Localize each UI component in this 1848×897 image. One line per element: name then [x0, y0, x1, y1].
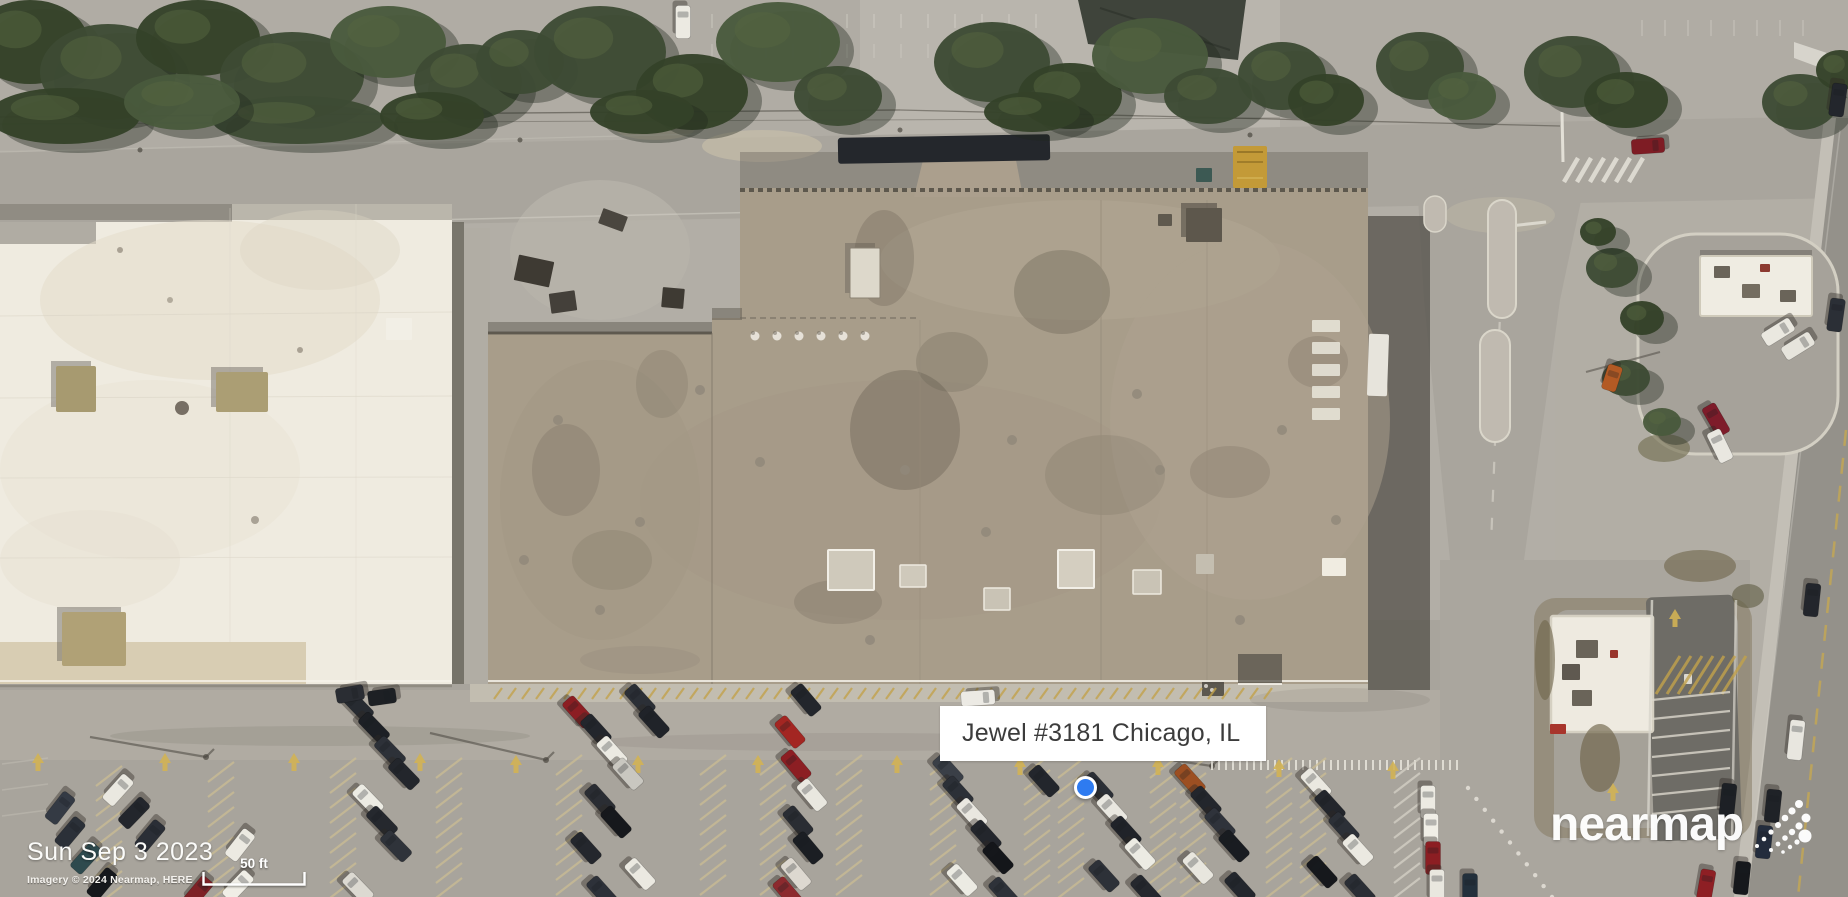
place-label[interactable]: Jewel #3181 Chicago, IL	[940, 706, 1266, 761]
satellite-imagery	[0, 0, 1848, 897]
location-marker-dot[interactable]	[1074, 776, 1097, 799]
capture-date-label: Sun Sep 3 2023	[27, 838, 213, 867]
map-scale-bar: 50 ft	[202, 857, 306, 887]
scale-bar-label: 50 ft	[202, 857, 306, 871]
nearmap-logo-arrow-icon	[1749, 794, 1813, 854]
imagery-attribution: Imagery © 2024 Nearmap, HERE	[27, 874, 193, 886]
aerial-map-viewport[interactable]: Jewel #3181 Chicago, IL Sun Sep 3 2023 I…	[0, 0, 1848, 897]
nearmap-logo-text: nearmap	[1550, 796, 1743, 854]
scale-bar-bracket-icon	[202, 871, 306, 887]
nearmap-logo: nearmap	[1550, 796, 1813, 854]
place-label-text: Jewel #3181 Chicago, IL	[962, 719, 1240, 748]
